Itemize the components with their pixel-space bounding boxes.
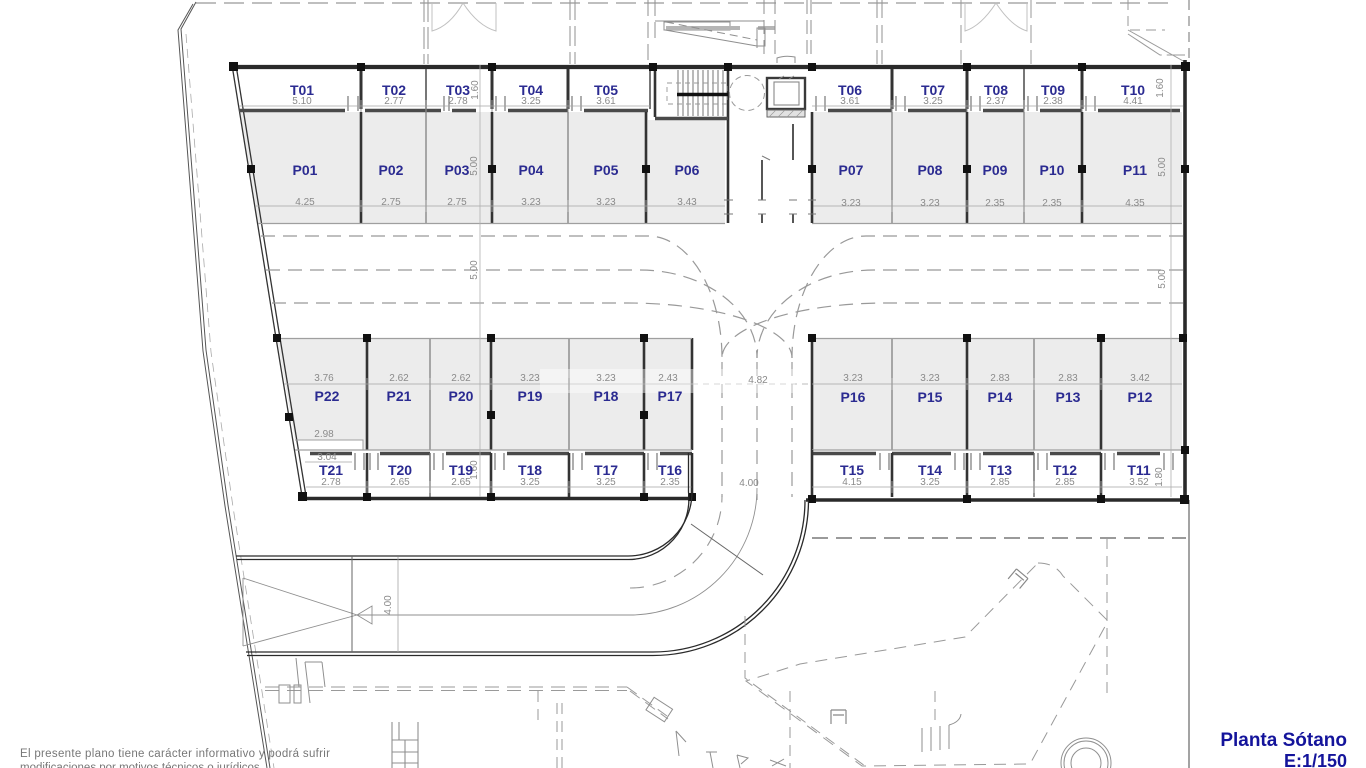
svg-text:2.75: 2.75	[447, 197, 467, 208]
svg-text:3.25: 3.25	[520, 477, 540, 488]
svg-text:P21: P21	[387, 388, 412, 404]
svg-text:T16: T16	[658, 462, 682, 478]
svg-text:T15: T15	[840, 462, 864, 478]
svg-text:3.61: 3.61	[596, 96, 616, 107]
svg-text:2.85: 2.85	[990, 477, 1010, 488]
svg-text:3.25: 3.25	[923, 96, 943, 107]
svg-text:T17: T17	[594, 462, 618, 478]
svg-text:P18: P18	[594, 388, 619, 404]
svg-text:T20: T20	[388, 462, 412, 478]
svg-text:P19: P19	[518, 388, 543, 404]
svg-text:3.23: 3.23	[520, 373, 540, 384]
svg-text:2.85: 2.85	[1055, 477, 1075, 488]
svg-text:2.62: 2.62	[451, 373, 471, 384]
svg-text:P20: P20	[449, 388, 474, 404]
svg-text:P14: P14	[988, 389, 1013, 405]
svg-text:1.60: 1.60	[470, 80, 481, 100]
svg-text:3.23: 3.23	[920, 373, 940, 384]
svg-text:2.38: 2.38	[1043, 96, 1063, 107]
svg-text:2.65: 2.65	[451, 477, 471, 488]
svg-text:P04: P04	[519, 162, 544, 178]
svg-text:2.62: 2.62	[389, 373, 409, 384]
svg-text:T13: T13	[988, 462, 1012, 478]
svg-text:P11: P11	[1123, 162, 1147, 178]
svg-text:5.00: 5.00	[1157, 269, 1168, 289]
svg-text:2.83: 2.83	[1058, 373, 1078, 384]
svg-text:P01: P01	[293, 162, 318, 178]
svg-text:2.83: 2.83	[990, 373, 1010, 384]
svg-text:3.25: 3.25	[521, 96, 541, 107]
svg-text:P07: P07	[839, 162, 864, 178]
svg-text:2.35: 2.35	[985, 198, 1005, 209]
svg-text:1.60: 1.60	[1155, 78, 1166, 98]
svg-text:2.43: 2.43	[658, 373, 678, 384]
svg-text:P05: P05	[594, 162, 619, 178]
svg-text:3.43: 3.43	[677, 197, 697, 208]
svg-text:5.00: 5.00	[469, 156, 480, 176]
svg-text:2.35: 2.35	[660, 477, 680, 488]
svg-text:P12: P12	[1128, 389, 1153, 405]
svg-text:3.76: 3.76	[314, 373, 334, 384]
svg-text:3.25: 3.25	[920, 477, 940, 488]
svg-text:modificaciones por motivos téc: modificaciones por motivos técnicos o ju…	[20, 762, 263, 768]
svg-text:3.23: 3.23	[843, 373, 863, 384]
svg-text:T18: T18	[518, 462, 542, 478]
svg-text:2.78: 2.78	[448, 96, 468, 107]
svg-text:3.23: 3.23	[596, 197, 616, 208]
svg-text:4.25: 4.25	[295, 197, 315, 208]
svg-text:2.77: 2.77	[384, 96, 404, 107]
svg-text:3.23: 3.23	[596, 373, 616, 384]
svg-text:3.25: 3.25	[596, 477, 616, 488]
svg-text:2.35: 2.35	[1042, 198, 1062, 209]
svg-text:4.82: 4.82	[748, 375, 768, 386]
svg-text:P22: P22	[315, 388, 340, 404]
svg-text:T21: T21	[319, 462, 343, 478]
svg-text:P17: P17	[658, 388, 683, 404]
svg-text:2.65: 2.65	[390, 477, 410, 488]
svg-text:3.42: 3.42	[1130, 373, 1150, 384]
svg-text:P03: P03	[445, 162, 470, 178]
svg-text:3.23: 3.23	[920, 198, 940, 209]
svg-text:4.00: 4.00	[383, 595, 394, 615]
svg-text:3.61: 3.61	[840, 96, 860, 107]
svg-text:Planta Sótano: Planta Sótano	[1220, 730, 1347, 751]
svg-text:P08: P08	[918, 162, 943, 178]
svg-text:2.78: 2.78	[321, 477, 341, 488]
svg-text:El presente plano tiene caráct: El presente plano tiene carácter informa…	[20, 748, 330, 760]
svg-text:2.75: 2.75	[381, 197, 401, 208]
svg-text:P09: P09	[983, 162, 1008, 178]
svg-text:3.23: 3.23	[841, 198, 861, 209]
svg-text:5.00: 5.00	[1157, 157, 1168, 177]
svg-text:T12: T12	[1053, 462, 1077, 478]
svg-text:P13: P13	[1056, 389, 1081, 405]
svg-text:P16: P16	[841, 389, 866, 405]
svg-text:T19: T19	[449, 462, 473, 478]
svg-text:4.00: 4.00	[739, 478, 759, 489]
svg-text:2.37: 2.37	[986, 96, 1006, 107]
svg-text:P10: P10	[1040, 162, 1065, 178]
svg-text:P15: P15	[918, 389, 943, 405]
svg-text:3.52: 3.52	[1129, 477, 1149, 488]
svg-text:P06: P06	[675, 162, 700, 178]
svg-text:T11: T11	[1127, 462, 1151, 478]
svg-text:T14: T14	[918, 462, 942, 478]
svg-text:4.41: 4.41	[1123, 96, 1143, 107]
svg-text:1.80: 1.80	[1154, 467, 1165, 487]
svg-text:4.15: 4.15	[842, 477, 862, 488]
svg-text:5.10: 5.10	[292, 96, 312, 107]
svg-text:2.98: 2.98	[314, 429, 334, 440]
svg-text:3.23: 3.23	[521, 197, 541, 208]
svg-text:P02: P02	[379, 162, 404, 178]
svg-text:E:1/150: E:1/150	[1284, 751, 1347, 768]
svg-text:4.35: 4.35	[1125, 198, 1145, 209]
